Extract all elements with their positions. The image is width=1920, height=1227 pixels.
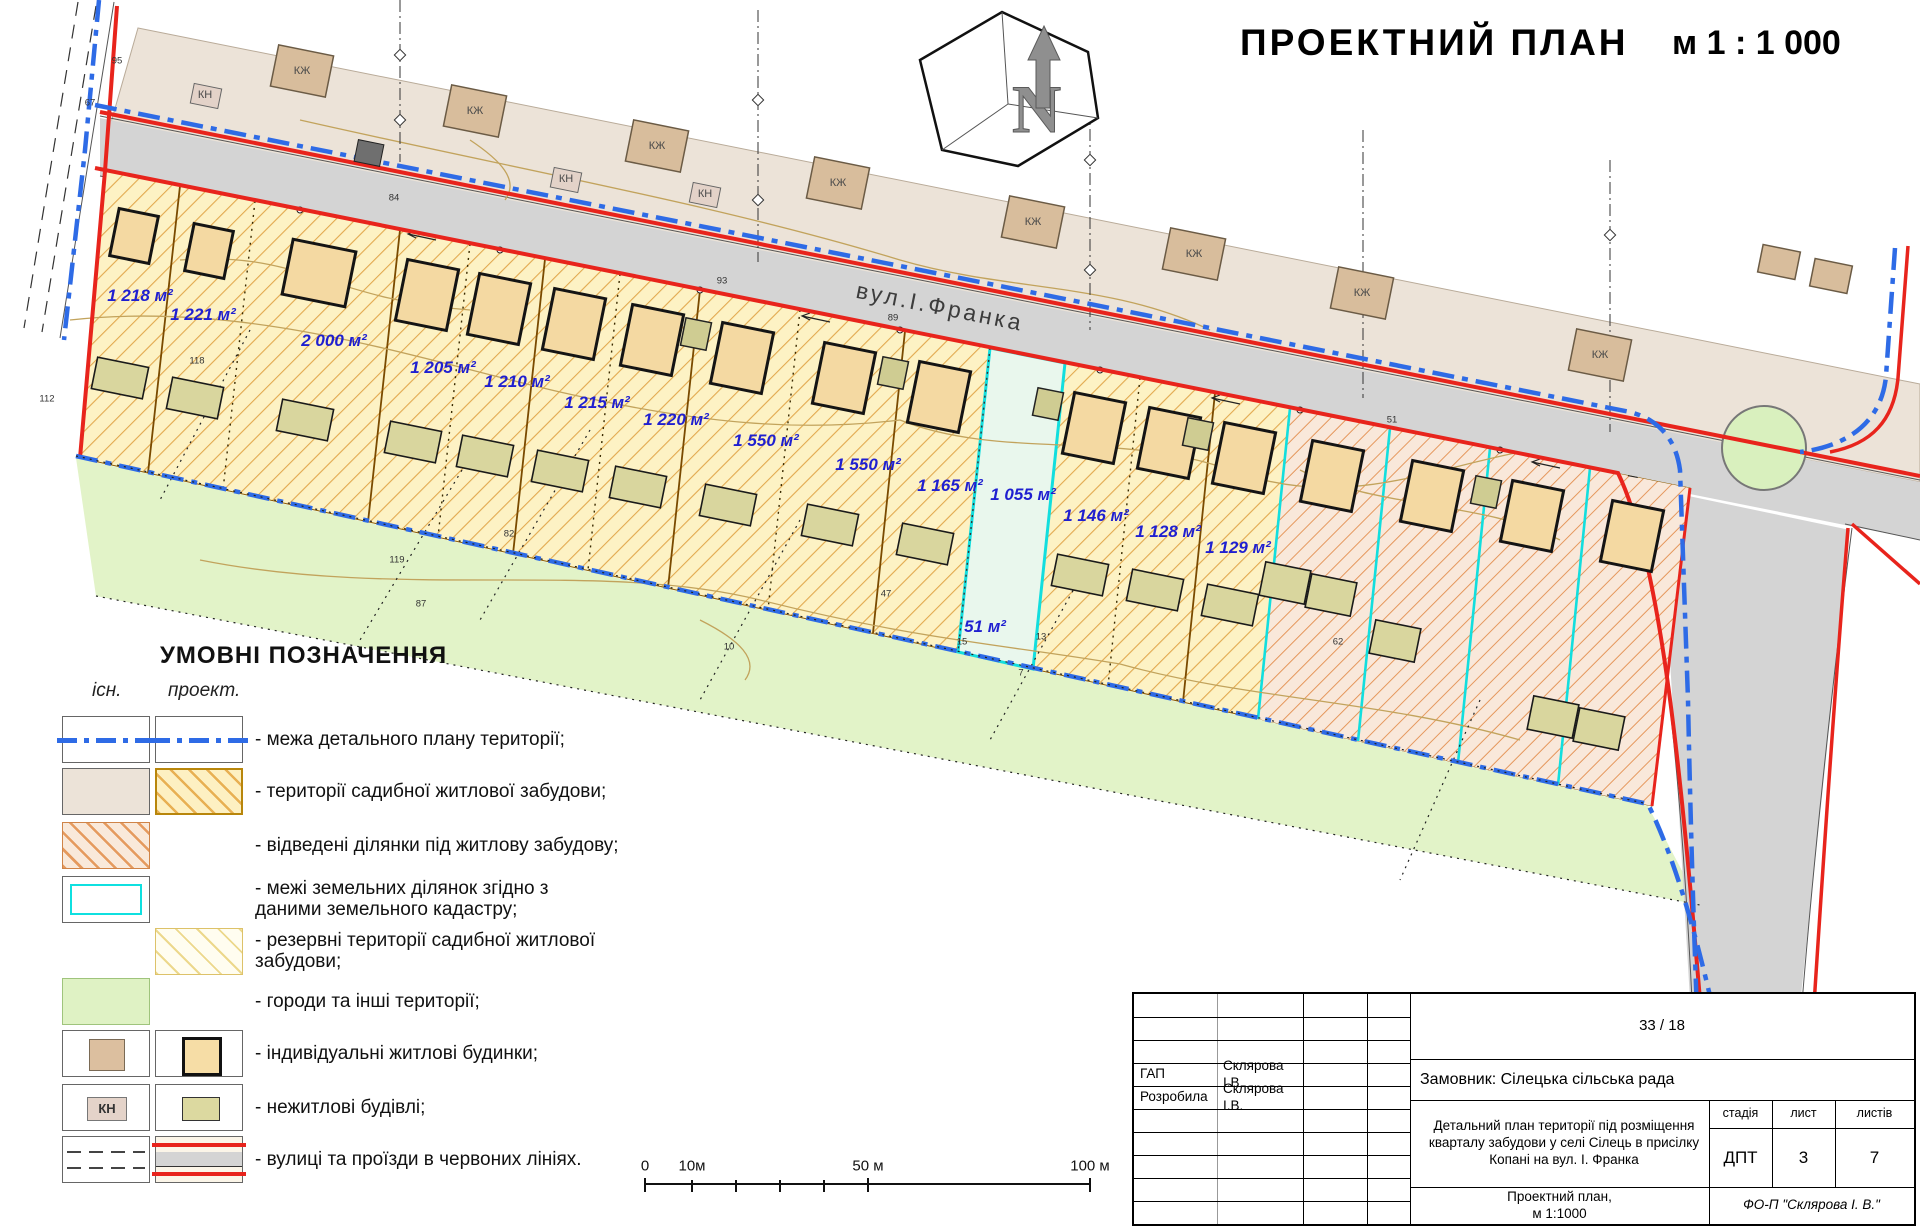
swatch-allocated	[62, 822, 150, 869]
swatch-cadastre	[62, 876, 150, 923]
page-title: ПРОЕКТНИЙ ПЛАН	[1240, 22, 1629, 64]
swatch-territory-existing	[62, 768, 150, 815]
project-name: Детальний план території під розміщення …	[1414, 1100, 1714, 1187]
legend-title: УМОВНІ ПОЗНАЧЕННЯ	[160, 642, 447, 670]
legend-label: - межі земельних ділянок згідно з даними…	[255, 878, 585, 922]
legend-row-streets: - вулиці та проїзди в червоних лініях.	[40, 1136, 640, 1183]
org-name: ФО-П "Склярова І. В."	[1709, 1187, 1914, 1224]
legend-label: - території садибної житлової забудови;	[255, 781, 625, 803]
swatch-gardens	[62, 978, 150, 1025]
legend-row-nonres: КН - нежитлові будівлі;	[40, 1084, 640, 1131]
legend-row-territory: - території садибної житлової забудови;	[40, 768, 640, 815]
kn-label: КН	[87, 1097, 127, 1121]
swatch-nonres-existing: КН	[62, 1084, 150, 1131]
drawing-name: Проектний план, м 1:1000	[1410, 1187, 1709, 1224]
legend-row-cadastre: - межі земельних ділянок згідно з даними…	[40, 876, 640, 923]
title-block: ГАП Склярова І.В. Розробила Склярова І.В…	[1132, 992, 1916, 1226]
role-gap: ГАП	[1134, 1063, 1217, 1086]
drawing-name-line2: м 1:1000	[1532, 1206, 1586, 1223]
sheet-value: 3	[1772, 1128, 1835, 1187]
stage-header: стадія	[1709, 1100, 1772, 1128]
legend-label: - індивідуальні житлові будинки;	[255, 1043, 625, 1065]
legend-col-project: проект.	[168, 680, 240, 702]
swatch-territory-project	[155, 768, 243, 815]
legend-label: - городи та інші території;	[255, 991, 625, 1013]
stage-value: ДПТ	[1709, 1128, 1772, 1187]
swatch-house-existing	[62, 1030, 150, 1077]
north-arrow-icon: N	[920, 12, 1098, 166]
project-plan-sheet: { "title": {"text": "ПРОЕКТНИЙ ПЛАН", "s…	[0, 0, 1920, 1227]
legend-row-houses: - індивідуальні житлові будинки;	[40, 1030, 640, 1077]
legend-row-allocated: - відведені ділянки під житлову забудову…	[40, 822, 640, 869]
client: Замовник: Сілецька сільська рада	[1410, 1059, 1914, 1100]
drawing-name-line1: Проектний план,	[1507, 1189, 1612, 1206]
legend-row-gardens: - городи та інші території;	[40, 978, 640, 1025]
legend-label: - межа детального плану території;	[255, 729, 625, 751]
legend-label: - резервні території садибної житлової з…	[255, 930, 625, 974]
swatch-streets-existing	[62, 1136, 150, 1183]
roundabout-island	[1722, 406, 1806, 490]
scale-bar	[645, 1178, 1090, 1192]
legend-label: - відведені ділянки під житлову забудову…	[255, 835, 625, 857]
swatch-boundary-existing	[62, 716, 150, 763]
swatch-reserve	[155, 928, 243, 975]
sheets-header: листів	[1835, 1100, 1914, 1128]
legend-row-reserve: - резервні території садибної житлової з…	[40, 928, 640, 975]
swatch-streets-project	[155, 1136, 243, 1183]
page-scale: м 1 : 1 000	[1672, 24, 1841, 63]
swatch-nonres-project	[155, 1084, 243, 1131]
swatch-boundary-project	[155, 716, 243, 763]
legend-row-boundary: - межа детального плану території;	[40, 716, 640, 763]
legend-label: - вулиці та проїзди в червоних лініях.	[255, 1149, 625, 1171]
role-developer: Розробила	[1134, 1086, 1217, 1109]
doc-number: 33 / 18	[1410, 994, 1914, 1059]
sheet-header: лист	[1772, 1100, 1835, 1128]
legend-col-existing: існ.	[92, 680, 121, 702]
name-developer: Склярова І.В.	[1217, 1086, 1303, 1109]
sheets-value: 7	[1835, 1128, 1914, 1187]
legend-label: - нежитлові будівлі;	[255, 1097, 625, 1119]
swatch-house-project	[155, 1030, 243, 1077]
